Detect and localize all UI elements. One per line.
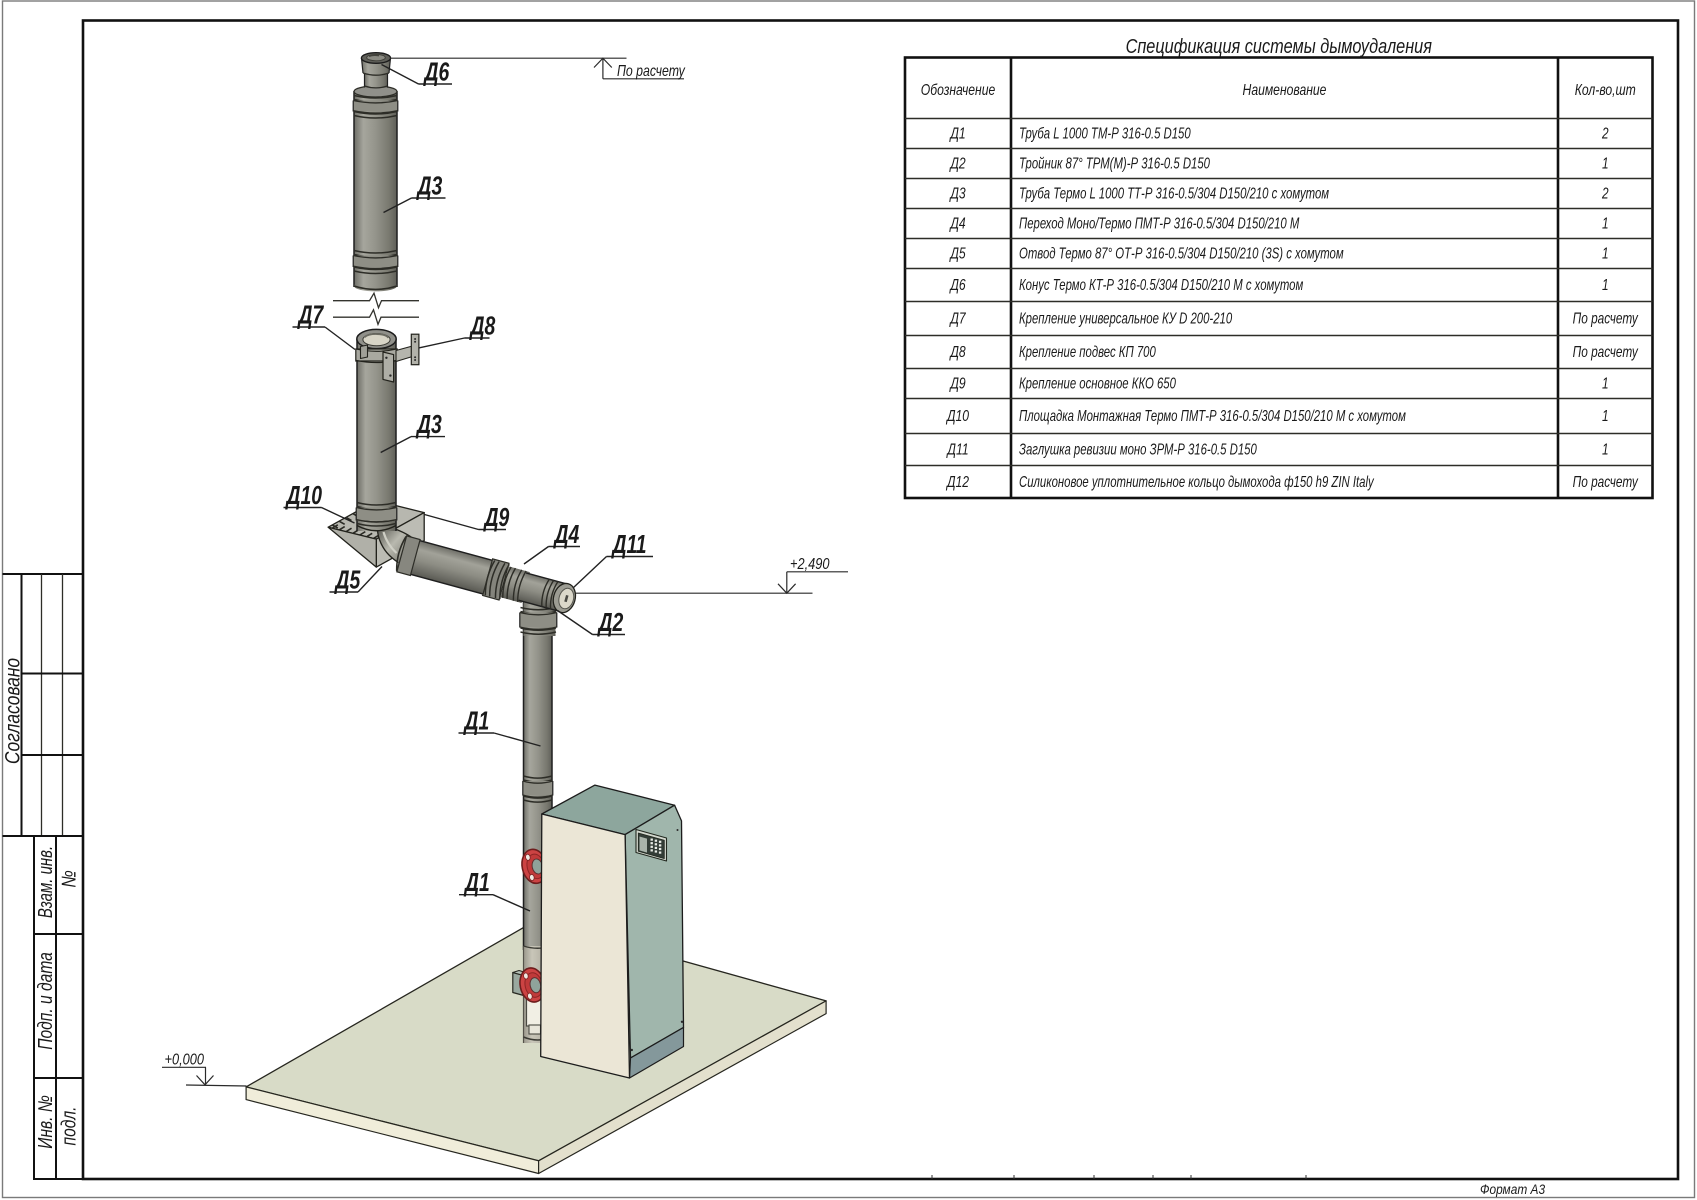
svg-text:1: 1: [1602, 214, 1609, 232]
svg-text:Наименование: Наименование: [1243, 81, 1327, 99]
svg-text:Кол-во,шт: Кол-во,шт: [1575, 81, 1636, 99]
svg-text:+0,000: +0,000: [165, 1051, 204, 1069]
svg-text:Труба L 1000 ТМ-Р 316-0.5 D150: Труба L 1000 ТМ-Р 316-0.5 D150: [1019, 124, 1191, 142]
svg-text:1: 1: [1602, 244, 1609, 262]
svg-text:Д5: Д5: [949, 245, 966, 263]
svg-text:2: 2: [1601, 184, 1609, 202]
svg-text:Силиконовое уплотнительное кол: Силиконовое уплотнительное кольцо дымохо…: [1019, 472, 1375, 490]
svg-text:По расчету: По расчету: [1573, 472, 1639, 490]
svg-text:Спецификация системы дымоудале: Спецификация системы дымоудаления: [1126, 34, 1433, 57]
svg-text:Заглушка ревизии моно ЗРМ-Р 31: Заглушка ревизии моно ЗРМ-Р 316-0.5 D150: [1019, 440, 1257, 458]
svg-text:Д3: Д3: [416, 172, 443, 200]
svg-text:Д10: Д10: [945, 407, 969, 425]
svg-text:Согласовано: Согласовано: [2, 658, 25, 764]
svg-text:Д7: Д7: [297, 301, 325, 329]
svg-text:2: 2: [1601, 124, 1609, 142]
svg-text:1: 1: [1602, 275, 1609, 293]
svg-text:1: 1: [1602, 440, 1609, 458]
svg-text:Д4: Д4: [553, 520, 580, 548]
svg-text:Обозначение: Обозначение: [921, 81, 996, 99]
svg-text:Тройник 87° ТРМ(М)-Р 316-0.5 D: Тройник 87° ТРМ(М)-Р 316-0.5 D150: [1019, 154, 1210, 172]
svg-text:Конус Термо КТ-Р 316-0.5/304 D: Конус Термо КТ-Р 316-0.5/304 D150/210 М …: [1019, 275, 1304, 293]
svg-text:Формат А3: Формат А3: [1480, 1181, 1546, 1197]
svg-text:Д9: Д9: [483, 503, 510, 531]
svg-text:1: 1: [1602, 154, 1609, 172]
svg-text:№: №: [58, 870, 80, 887]
svg-text:Труба Термо L 1000 ТТ-Р 316-0.: Труба Термо L 1000 ТТ-Р 316-0.5/304 D150…: [1019, 184, 1329, 202]
svg-text:Д2: Д2: [949, 155, 966, 173]
svg-text:По расчету: По расчету: [1573, 342, 1639, 360]
svg-text:Отвод Термо 87° ОТ-Р 316-0.5/3: Отвод Термо 87° ОТ-Р 316-0.5/304 D150/21…: [1019, 244, 1344, 262]
svg-text:Д4: Д4: [949, 215, 966, 233]
svg-text:Взам. инв.: Взам. инв.: [34, 846, 57, 918]
svg-text:Д3: Д3: [415, 411, 442, 439]
svg-text:Крепление подвес КП 700: Крепление подвес КП 700: [1019, 342, 1156, 360]
svg-text:Д8: Д8: [949, 343, 966, 361]
svg-text:Д11: Д11: [946, 441, 969, 459]
svg-text:Д8: Д8: [469, 312, 496, 340]
svg-text:Площадка Монтажная Термо ПМТ-Р: Площадка Монтажная Термо ПМТ-Р 316-0.5/3…: [1019, 406, 1406, 424]
svg-text:Д7: Д7: [949, 310, 967, 328]
svg-text:1: 1: [1602, 406, 1609, 424]
svg-text:По расчету: По расчету: [617, 63, 686, 81]
svg-text:Крепление универсальное КУ D 2: Крепление универсальное КУ D 200-210: [1019, 309, 1232, 327]
svg-text:Д11: Д11: [611, 530, 647, 558]
svg-text:+2,490: +2,490: [790, 556, 829, 574]
svg-text:Д1: Д1: [463, 869, 489, 897]
svg-text:Д12: Д12: [945, 473, 969, 491]
svg-text:Д6: Д6: [423, 58, 450, 86]
svg-text:Крепление основное ККО 650: Крепление основное ККО 650: [1019, 374, 1176, 392]
svg-text:Д1: Д1: [949, 125, 966, 143]
svg-text:Д10: Д10: [285, 481, 323, 509]
svg-text:Инв. №: Инв. №: [34, 1095, 56, 1148]
svg-text:Подп. и дата: Подп. и дата: [34, 952, 56, 1050]
svg-text:Д3: Д3: [949, 185, 966, 203]
svg-text:Д5: Д5: [334, 566, 361, 594]
svg-text:Д1: Д1: [463, 707, 489, 735]
svg-text:Д6: Д6: [949, 276, 966, 294]
svg-text:Д2: Д2: [597, 608, 624, 636]
svg-text:1: 1: [1602, 374, 1609, 392]
svg-text:Д9: Д9: [949, 375, 966, 393]
svg-text:Переход Моно/Термо ПМТ-Р 316-0: Переход Моно/Термо ПМТ-Р 316-0.5/304 D15…: [1019, 214, 1300, 232]
svg-text:По расчету: По расчету: [1573, 309, 1639, 327]
svg-text:подл.: подл.: [58, 1107, 80, 1146]
